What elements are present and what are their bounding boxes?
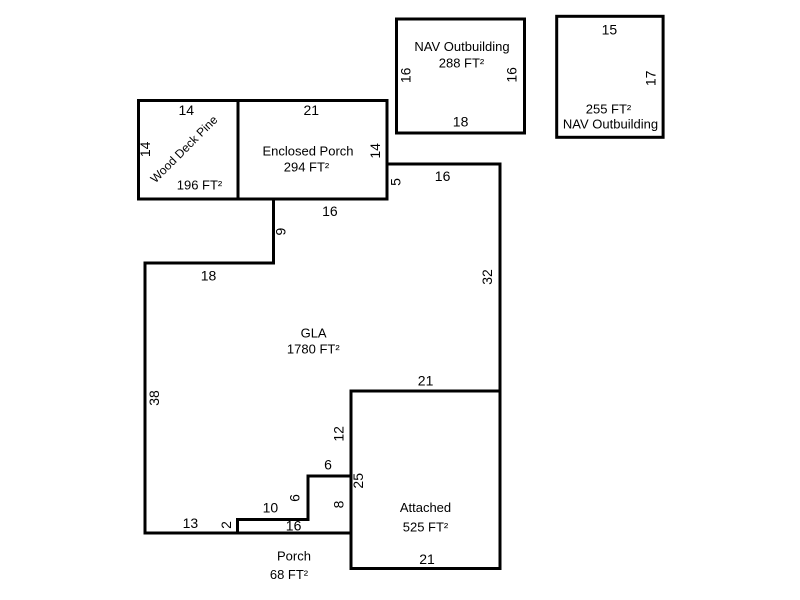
svg-text:16: 16: [435, 168, 451, 184]
svg-text:21: 21: [418, 373, 434, 389]
svg-text:25: 25: [350, 473, 366, 489]
svg-text:525 FT²: 525 FT²: [403, 520, 449, 535]
svg-text:14: 14: [367, 143, 383, 159]
svg-text:Enclosed Porch: Enclosed Porch: [262, 143, 353, 158]
svg-text:32: 32: [479, 269, 495, 285]
svg-text:38: 38: [146, 390, 162, 406]
svg-text:16: 16: [398, 67, 414, 83]
svg-text:9: 9: [272, 227, 288, 235]
svg-text:6: 6: [324, 457, 332, 473]
svg-text:288 FT²: 288 FT²: [439, 56, 485, 71]
svg-text:13: 13: [183, 515, 199, 531]
svg-text:2: 2: [218, 521, 234, 529]
svg-text:1780 FT²: 1780 FT²: [287, 342, 340, 357]
svg-text:14: 14: [137, 141, 153, 157]
svg-text:10: 10: [263, 500, 279, 516]
svg-text:NAV Outbuilding: NAV Outbuilding: [414, 39, 509, 54]
svg-text:18: 18: [453, 114, 469, 130]
svg-text:14: 14: [179, 102, 195, 118]
svg-text:12: 12: [331, 426, 347, 442]
svg-text:Porch: Porch: [277, 549, 311, 564]
svg-text:255 FT²: 255 FT²: [586, 101, 632, 116]
svg-text:Attached: Attached: [400, 500, 451, 515]
svg-text:GLA: GLA: [301, 326, 327, 341]
svg-text:16: 16: [286, 518, 302, 534]
svg-text:8: 8: [331, 500, 347, 508]
svg-text:21: 21: [419, 551, 435, 567]
svg-text:5: 5: [388, 178, 404, 186]
svg-text:294 FT²: 294 FT²: [284, 160, 330, 175]
svg-text:17: 17: [642, 70, 658, 86]
svg-text:16: 16: [504, 67, 520, 83]
svg-text:15: 15: [602, 21, 618, 37]
svg-text:68 FT²: 68 FT²: [270, 567, 309, 582]
svg-text:21: 21: [304, 102, 320, 118]
svg-text:16: 16: [322, 203, 338, 219]
svg-text:6: 6: [287, 494, 303, 502]
svg-text:18: 18: [201, 267, 217, 283]
svg-text:NAV Outbuilding: NAV Outbuilding: [563, 116, 658, 131]
svg-text:196 FT²: 196 FT²: [177, 177, 223, 192]
